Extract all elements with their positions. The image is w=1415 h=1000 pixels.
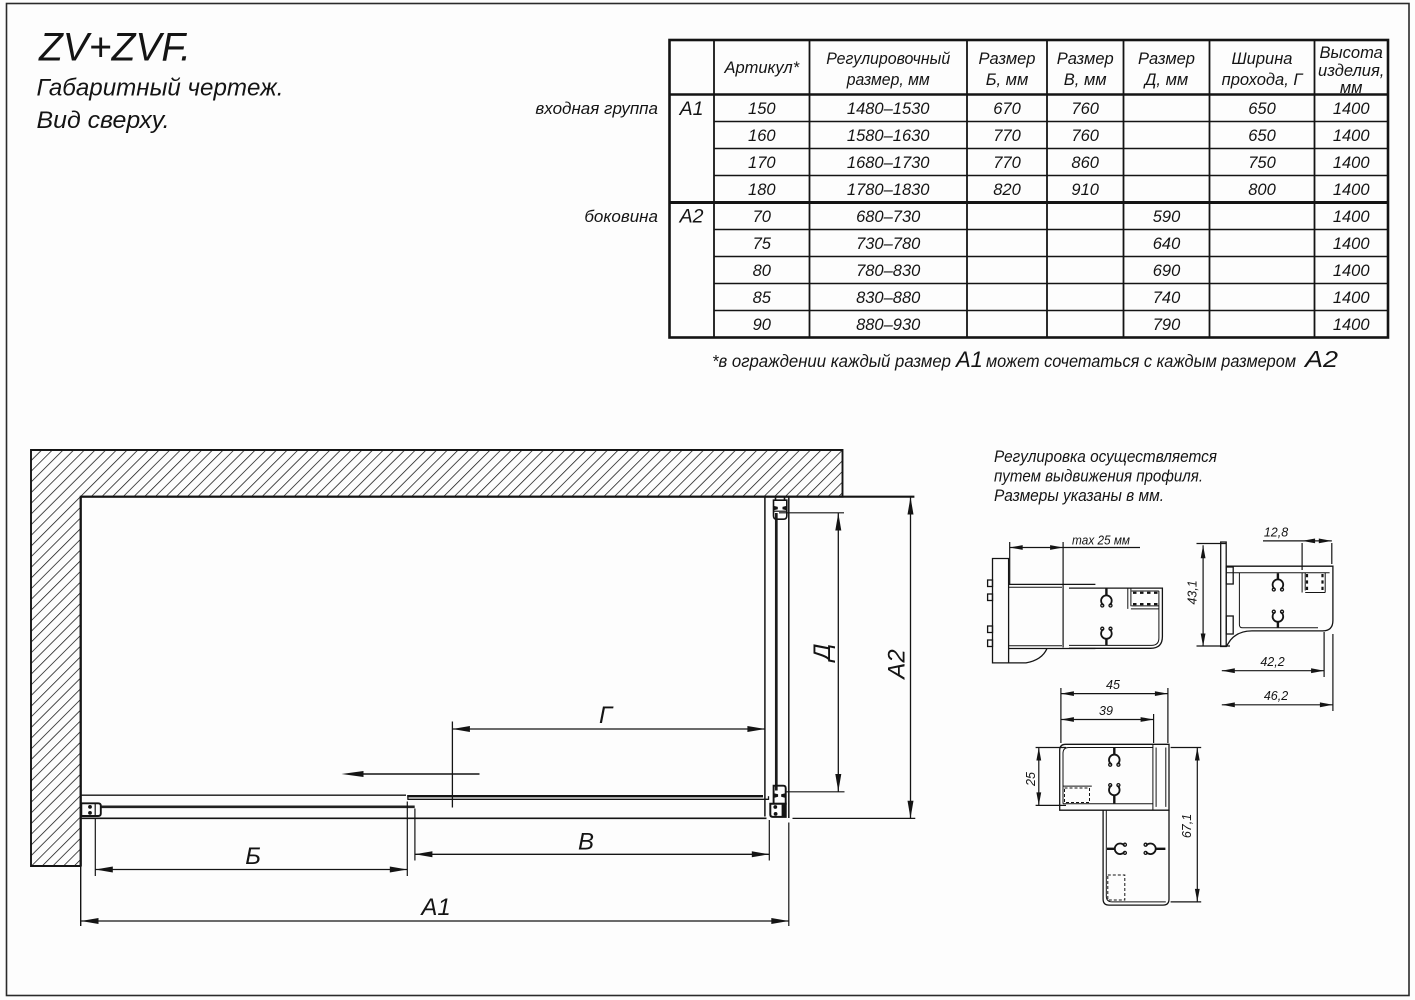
svg-text:650: 650: [1248, 127, 1276, 145]
svg-text:670: 670: [993, 100, 1021, 118]
svg-text:Г: Г: [599, 702, 614, 729]
svg-text:1680–1730: 1680–1730: [847, 154, 930, 172]
svg-text:760: 760: [1071, 127, 1099, 145]
svg-text:160: 160: [748, 127, 776, 145]
svg-text:80: 80: [753, 262, 772, 280]
svg-text:Ширина: Ширина: [1232, 50, 1293, 68]
svg-text:может сочетаться с каждым разм: может сочетаться с каждым размером: [986, 351, 1296, 371]
svg-text:1400: 1400: [1333, 100, 1371, 118]
svg-text:85: 85: [753, 289, 772, 307]
svg-text:Размер: Размер: [1138, 50, 1195, 68]
svg-text:1780–1830: 1780–1830: [847, 181, 930, 199]
svg-text:Вид сверху.: Вид сверху.: [37, 107, 170, 134]
svg-text:max 25 мм: max 25 мм: [1072, 534, 1130, 548]
svg-text:770: 770: [993, 154, 1021, 172]
svg-text:880–930: 880–930: [856, 316, 921, 334]
svg-text:90: 90: [753, 316, 772, 334]
svg-text:910: 910: [1071, 181, 1099, 199]
svg-text:А2: А2: [1303, 346, 1339, 372]
svg-text:Размеры указаны в мм.: Размеры указаны в мм.: [994, 486, 1164, 505]
svg-text:Регулировочный: Регулировочный: [826, 50, 950, 68]
svg-text:А2: А2: [679, 206, 704, 228]
svg-text:размер, мм: размер, мм: [846, 71, 930, 89]
svg-text:650: 650: [1248, 100, 1276, 118]
svg-text:46,2: 46,2: [1264, 689, 1288, 703]
svg-text:800: 800: [1248, 181, 1276, 199]
svg-text:1400: 1400: [1333, 154, 1371, 172]
svg-text:1580–1630: 1580–1630: [847, 127, 930, 145]
svg-text:1400: 1400: [1333, 316, 1371, 334]
svg-text:входная группа: входная группа: [535, 99, 658, 118]
svg-text:740: 740: [1153, 289, 1181, 307]
svg-text:В: В: [578, 829, 594, 856]
svg-text:70: 70: [753, 208, 772, 226]
svg-text:39: 39: [1099, 704, 1113, 718]
svg-text:45: 45: [1106, 678, 1120, 692]
svg-text:Д, мм: Д, мм: [1143, 71, 1188, 89]
svg-text:Д: Д: [809, 643, 836, 663]
svg-text:ZV+ZVF.: ZV+ZVF.: [38, 26, 191, 70]
svg-text:изделия,: изделия,: [1318, 62, 1384, 80]
svg-text:В, мм: В, мм: [1064, 71, 1107, 89]
svg-text:750: 750: [1248, 154, 1276, 172]
svg-text:Размер: Размер: [1057, 50, 1114, 68]
svg-text:590: 590: [1153, 208, 1181, 226]
svg-text:780–830: 780–830: [856, 262, 921, 280]
svg-text:43,1: 43,1: [1186, 580, 1200, 604]
svg-text:770: 770: [993, 127, 1021, 145]
svg-text:А1: А1: [419, 894, 450, 921]
svg-text:боковина: боковина: [584, 207, 658, 226]
svg-text:А1: А1: [954, 347, 983, 372]
svg-text:12,8: 12,8: [1264, 526, 1288, 540]
svg-text:А2: А2: [884, 649, 911, 680]
svg-text:Артикул*: Артикул*: [723, 59, 799, 77]
svg-text:690: 690: [1153, 262, 1181, 280]
svg-text:42,2: 42,2: [1260, 655, 1284, 669]
svg-text:760: 760: [1071, 100, 1099, 118]
svg-text:180: 180: [748, 181, 776, 199]
svg-text:75: 75: [753, 235, 772, 253]
svg-text:Габаритный чертеж.: Габаритный чертеж.: [37, 75, 284, 102]
svg-text:путем выдвижения профиля.: путем выдвижения профиля.: [994, 467, 1203, 486]
svg-text:170: 170: [748, 154, 776, 172]
svg-text:860: 860: [1071, 154, 1099, 172]
svg-text:Регулировка осуществляется: Регулировка осуществляется: [994, 447, 1217, 466]
svg-text:1480–1530: 1480–1530: [847, 100, 930, 118]
svg-text:25: 25: [1024, 772, 1038, 787]
svg-text:А1: А1: [679, 98, 704, 120]
svg-text:прохода, Г: прохода, Г: [1222, 71, 1304, 89]
svg-text:150: 150: [748, 100, 776, 118]
svg-text:67,1: 67,1: [1180, 814, 1194, 838]
svg-text:1400: 1400: [1333, 262, 1371, 280]
svg-text:мм: мм: [1340, 79, 1363, 97]
svg-text:1400: 1400: [1333, 127, 1371, 145]
svg-text:820: 820: [993, 181, 1021, 199]
svg-text:*в ограждении каждый размер: *в ограждении каждый размер: [712, 351, 951, 371]
svg-text:Б, мм: Б, мм: [986, 71, 1029, 89]
svg-text:830–880: 830–880: [856, 289, 921, 307]
svg-text:Высота: Высота: [1320, 44, 1383, 62]
svg-text:640: 640: [1153, 235, 1181, 253]
svg-text:1400: 1400: [1333, 289, 1371, 307]
svg-text:790: 790: [1153, 316, 1181, 334]
svg-text:Размер: Размер: [979, 50, 1036, 68]
svg-text:730–780: 730–780: [856, 235, 921, 253]
svg-text:1400: 1400: [1333, 181, 1371, 199]
svg-text:680–730: 680–730: [856, 208, 921, 226]
svg-text:Б: Б: [245, 843, 261, 870]
svg-text:1400: 1400: [1333, 235, 1371, 253]
svg-text:1400: 1400: [1333, 208, 1371, 226]
